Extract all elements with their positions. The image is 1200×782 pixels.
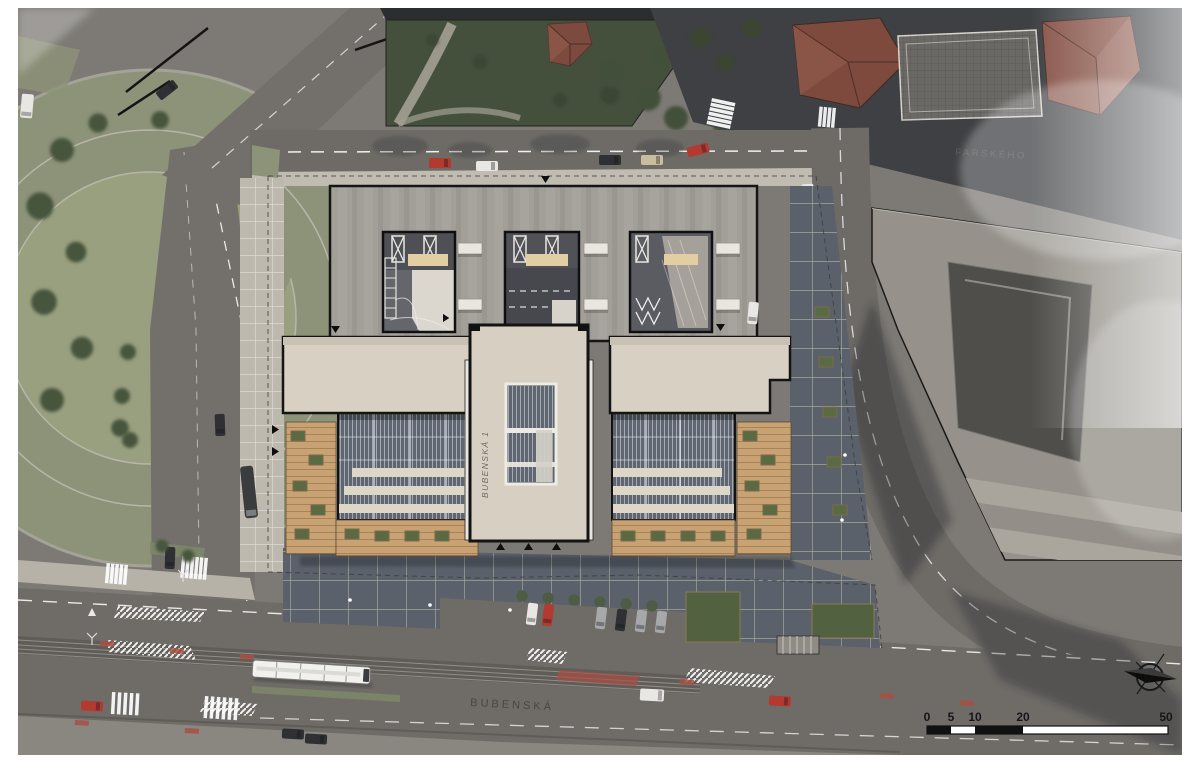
car: [81, 700, 103, 711]
tree: [742, 18, 761, 37]
parapet-band: [283, 337, 473, 345]
car: [476, 161, 498, 171]
van: [20, 94, 34, 119]
tree: [88, 113, 107, 132]
roof-vent: [716, 243, 740, 257]
west-wing-roof: [283, 337, 473, 413]
car: [599, 155, 621, 165]
main-building: BUBENSKÁ 1: [272, 176, 795, 568]
terrace-west: [286, 422, 336, 554]
site-plan-canvas: FARSKÉHO: [0, 0, 1200, 782]
tree: [114, 388, 130, 404]
tree: [40, 388, 64, 412]
tree: [26, 192, 53, 219]
skylight-beige-panel: [664, 254, 698, 265]
tree: [690, 28, 711, 49]
planter: [743, 431, 757, 441]
car: [429, 158, 451, 168]
stairs: [777, 636, 819, 654]
tree: [50, 138, 74, 162]
planter: [827, 457, 841, 467]
tree: [646, 600, 657, 611]
planter: [763, 505, 777, 515]
scale-tick-10: 10: [968, 710, 982, 724]
planter: [295, 529, 309, 539]
crosswalk: [105, 563, 128, 585]
terrace-south-east: [612, 520, 735, 556]
tree: [31, 289, 57, 315]
planter: [651, 531, 665, 541]
scale-bar-segment: [975, 726, 1023, 734]
planter: [345, 529, 359, 539]
tree: [542, 592, 553, 603]
tree: [568, 594, 579, 605]
tree: [66, 242, 87, 263]
east-wing-roof: [610, 337, 790, 413]
planter: [745, 481, 759, 491]
planter: [621, 531, 635, 541]
atrium-skylight: [506, 384, 556, 484]
tree: [664, 106, 688, 130]
planter: [405, 531, 419, 541]
scale-tick-5: 5: [948, 710, 955, 724]
roof-vent: [584, 243, 608, 257]
hedge-planter: [812, 604, 874, 638]
scale-tick-50: 50: [1159, 710, 1173, 724]
planter: [375, 531, 389, 541]
tree: [426, 34, 439, 47]
tree: [600, 85, 619, 104]
grass-patch: [252, 145, 280, 178]
car: [747, 302, 759, 325]
van: [640, 688, 665, 701]
skylight-beige-panel: [408, 254, 448, 266]
car: [641, 155, 663, 165]
planter: [435, 531, 449, 541]
terrace-south-west: [336, 520, 478, 556]
planter: [311, 505, 325, 515]
courtyard-east: [630, 232, 712, 332]
planter: [833, 505, 847, 515]
terrace-east: [737, 422, 791, 554]
scale-tick-20: 20: [1016, 710, 1030, 724]
glass-wing-east: [612, 413, 735, 520]
planter: [291, 431, 305, 441]
planter: [681, 531, 695, 541]
planter: [823, 407, 837, 417]
planter: [747, 529, 761, 539]
site-plan-page: FARSKÉHO: [0, 0, 1200, 782]
scale-bar-segment: [927, 726, 951, 734]
hedge-planter: [686, 592, 740, 642]
car: [215, 414, 226, 436]
planter: [815, 307, 829, 317]
tree: [717, 53, 735, 71]
car: [769, 695, 791, 706]
building-shadow-south: [300, 556, 795, 568]
central-tower: BUBENSKÁ 1: [470, 325, 588, 550]
tree: [120, 344, 136, 360]
scale-bar-track: [927, 726, 1168, 734]
parapet-band: [610, 337, 790, 345]
scale-tick-0: 0: [924, 710, 931, 724]
tree: [597, 57, 627, 87]
planter: [761, 455, 775, 465]
roof-vent: [458, 243, 482, 257]
courtyard-west: [383, 232, 455, 332]
tree: [182, 550, 195, 563]
building-roof-label: BUBENSKÁ 1: [480, 431, 490, 498]
car: [282, 728, 304, 739]
tree: [473, 55, 487, 69]
planter: [819, 357, 833, 367]
courtyard-center: [505, 232, 579, 332]
tree: [620, 598, 631, 609]
car: [305, 733, 327, 744]
roof-vent: [716, 299, 740, 313]
glass-wing-west: [338, 413, 478, 520]
planter: [293, 481, 307, 491]
roof-vent: [584, 299, 608, 313]
tree: [151, 111, 169, 129]
tree: [122, 432, 138, 448]
planter: [309, 455, 323, 465]
tree: [553, 93, 567, 107]
tree: [594, 596, 605, 607]
tree: [71, 337, 93, 359]
planter: [711, 531, 725, 541]
tree: [516, 590, 527, 601]
tree: [156, 540, 169, 553]
roof-vent: [458, 299, 482, 313]
tree: [635, 85, 661, 111]
skylight-beige-panel: [526, 254, 568, 266]
